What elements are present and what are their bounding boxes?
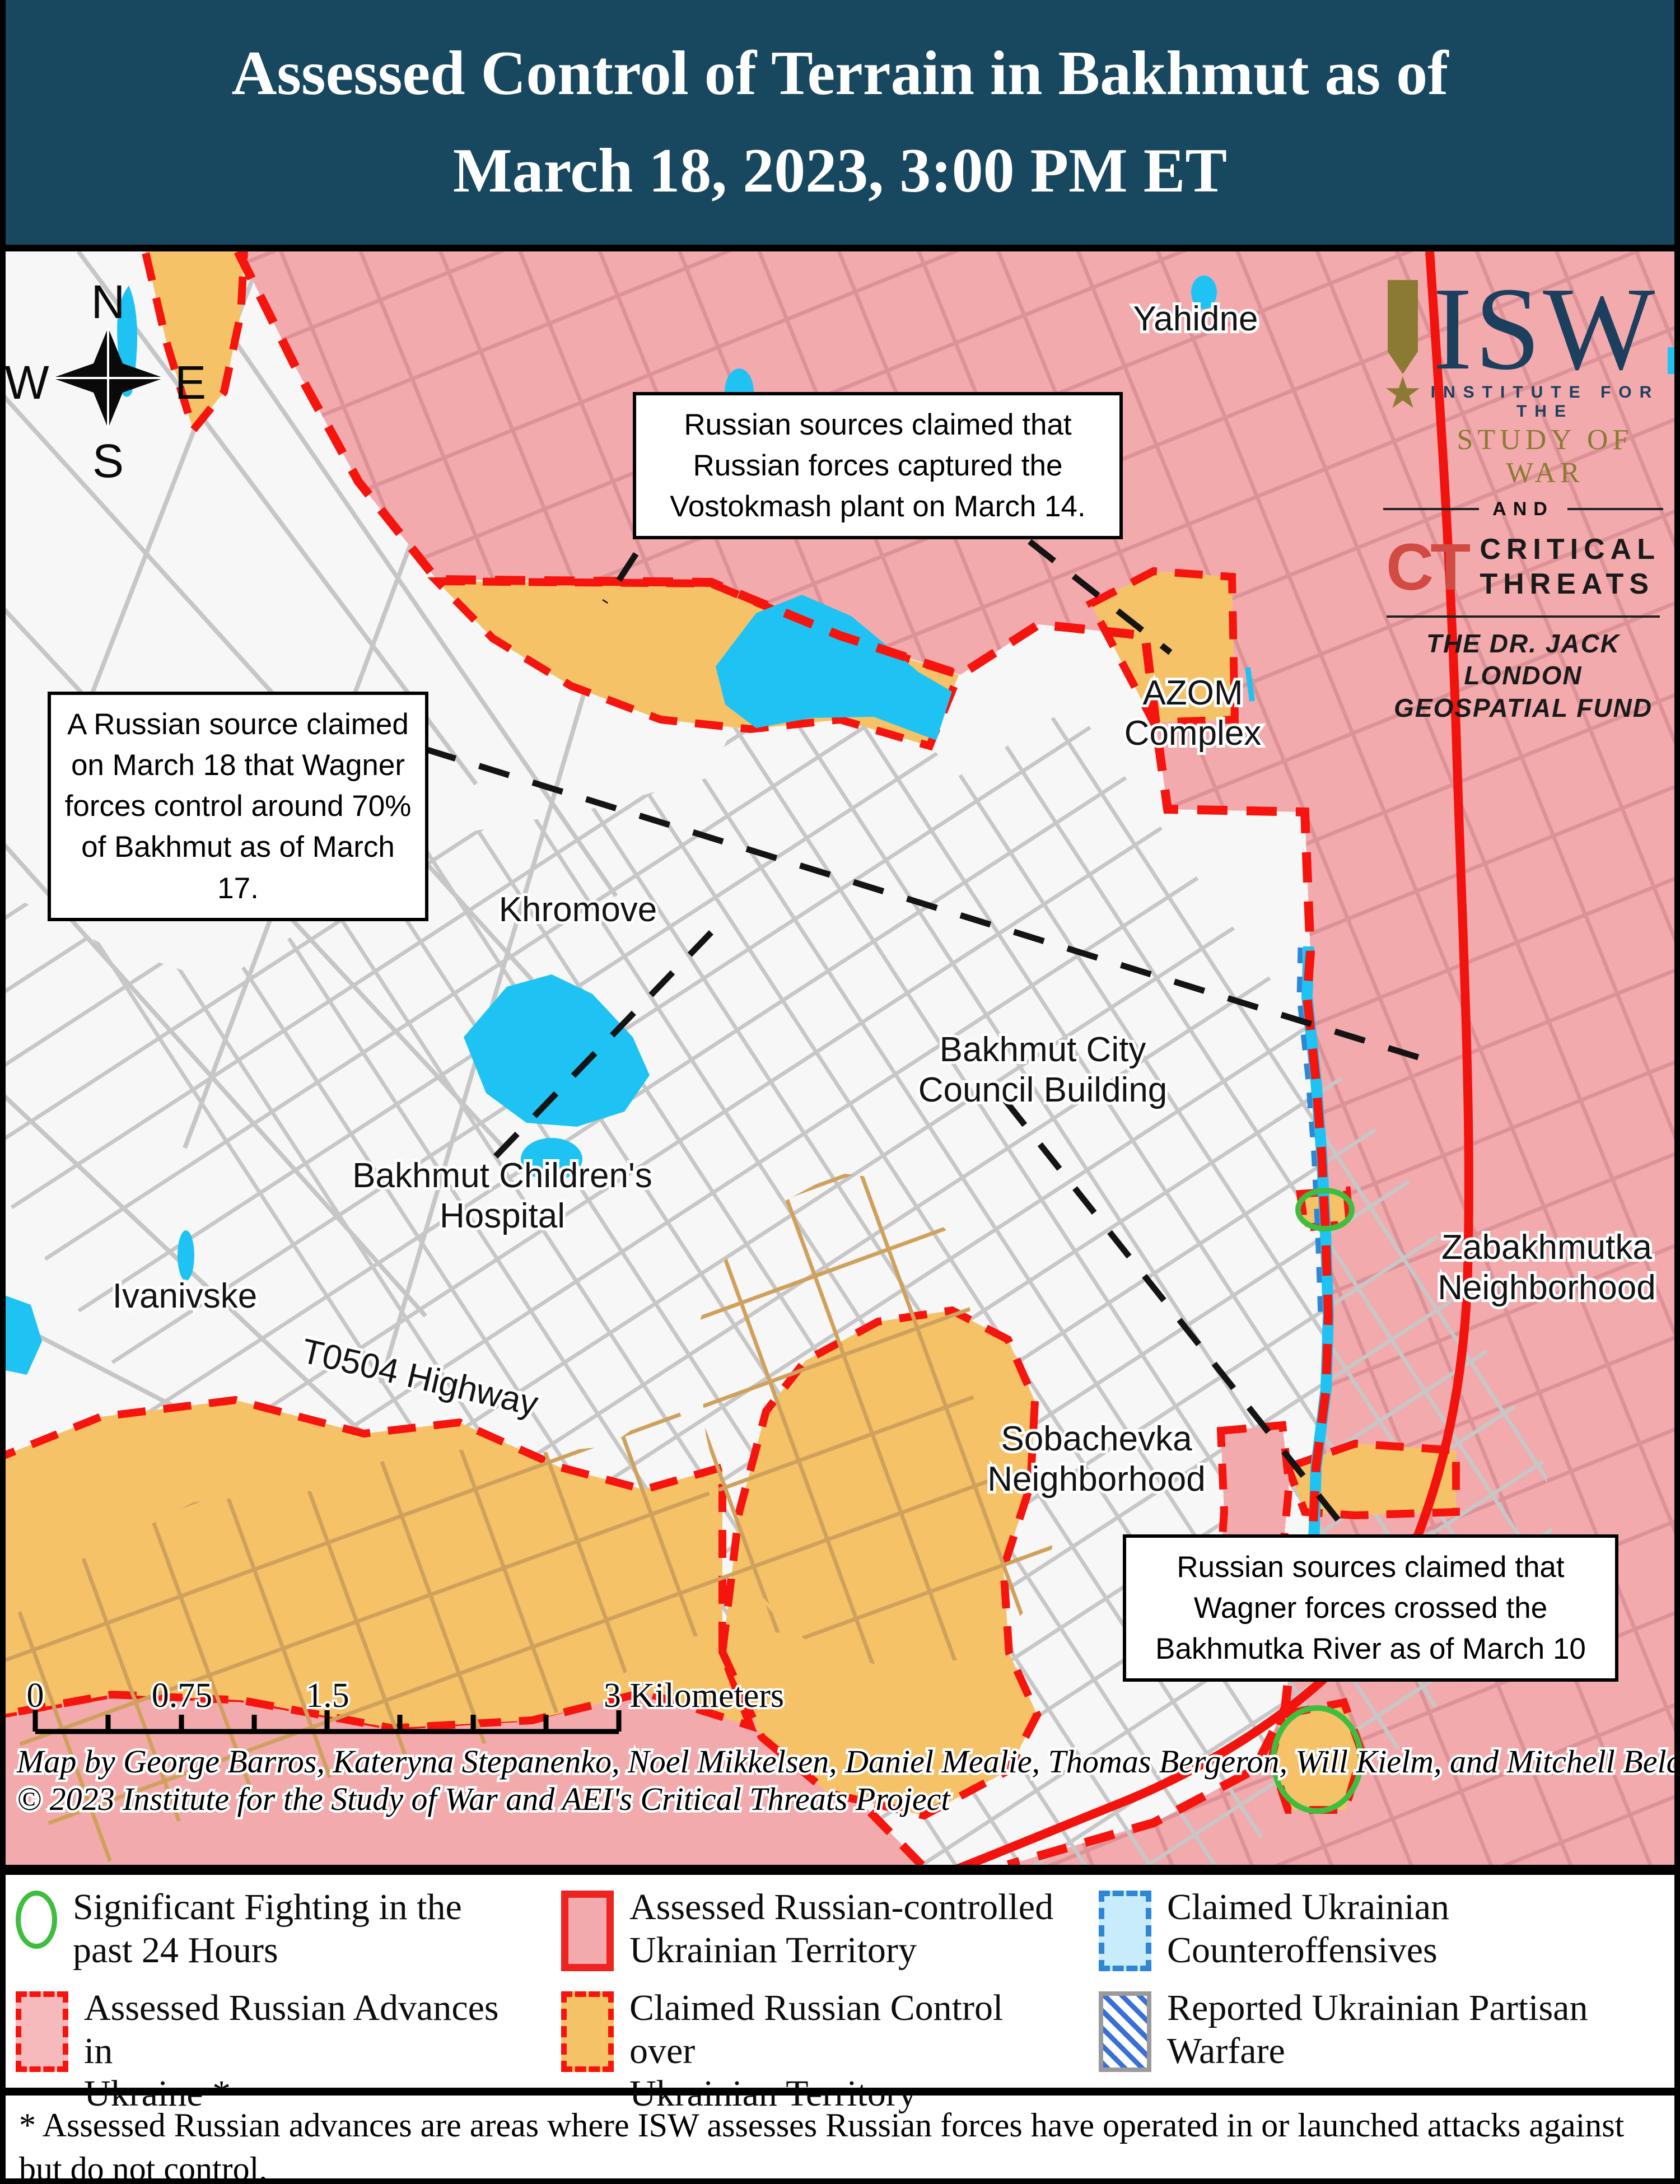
label-sobachevka-2: Neighborhood [987,1460,1206,1499]
svg-text:E: E [175,356,206,409]
svg-text:3 Kilometers: 3 Kilometers [604,1677,784,1715]
legend-item-claimed-control: Claimed Russian Control overUkrainian Te… [561,1987,1065,2116]
russian-advances-swatch [16,1991,68,2072]
label-zabakhmutka-2: Neighborhood [1438,1268,1656,1307]
label-sobachevka-1: Sobachevka [1001,1420,1192,1458]
title-separator [0,245,1680,251]
partisan-warfare-swatch [1099,1991,1151,2072]
label-ivanivske: Ivanivske [113,1277,257,1315]
callout-wagner-text: A Russian source claimed on March 18 tha… [59,704,417,909]
isw-institute-text: INSTITUTE FOR THE [1427,383,1663,421]
logo-and-divider: AND [1383,498,1663,520]
callout-vostokmash: Russian sources claimed that Russian for… [633,392,1123,539]
logo-rule [1387,615,1660,618]
title-bar: Assessed Control of Terrain in Bakhmut a… [0,0,1680,245]
page-title-line2: March 18, 2023, 3:00 PM ET [453,123,1227,220]
legend-item-partisan-warfare: Reported Ukrainian PartisanWarfare [1099,1987,1659,2073]
svg-text:0: 0 [27,1677,44,1715]
page-border-left [0,0,6,2184]
isw-gold-banner-icon: ★ [1383,280,1422,414]
callout-bakhmutka-text: Russian sources claimed that Wagner forc… [1134,1547,1607,1669]
page-border-right [1674,0,1680,2184]
geospatial-fund-line1: THE DR. JACK LONDON [1383,628,1663,692]
label-yahidne: Yahidne [1133,300,1258,338]
russian-controlled-swatch [561,1891,614,1971]
svg-text:N: N [91,276,125,328]
label-azom-2: Complex [1124,714,1262,753]
isw-star-icon: ★ [1383,371,1422,414]
isw-study-of-war-text: STUDY OF WAR [1427,423,1663,489]
label-khromove: Khromove [499,890,657,929]
label-hospital-1: Bakhmut Children's [352,1156,652,1195]
fighting-circle-swatch [16,1891,57,1949]
isw-wordmark: ISW [1427,280,1663,377]
legend-item-fighting: Significant Fighting in thepast 24 Hours [16,1886,520,1972]
svg-text:1.5: 1.5 [306,1677,349,1715]
counteroffensive-swatch [1099,1891,1151,1971]
label-azom-1: AZOM [1142,674,1243,712]
label-hospital-2: Hospital [440,1197,565,1235]
callout-wagner-control: A Russian source claimed on March 18 tha… [48,692,428,921]
legend-item-russian-controlled: Assessed Russian-controlledUkrainian Ter… [561,1886,1065,1972]
legend-item-counteroffensives: Claimed UkrainianCounteroffensives [1099,1886,1659,1972]
page-title-line1: Assessed Control of Terrain in Bakhmut a… [232,25,1449,123]
svg-text:0.75: 0.75 [152,1677,213,1715]
callout-vostokmash-text: Russian sources claimed that Russian for… [644,404,1112,527]
label-council-1: Bakhmut City [940,1030,1146,1069]
label-council-2: Council Building [918,1071,1168,1109]
svg-text:S: S [92,435,124,487]
isw-bakhmut-map-page: Assessed Control of Terrain in Bakhmut a… [0,0,1680,2184]
credits-line2: © 2023 Institute for the Study of War an… [17,1781,951,1817]
legend-separator [0,1865,1680,1875]
page-border-bottom [0,2178,1680,2184]
geospatial-fund-line2: GEOSPATIAL FUND [1383,692,1663,725]
claimed-control-swatch [561,1991,614,2072]
isw-ct-logo: ★ ISW INSTITUTE FOR THE STUDY OF WAR AND… [1383,280,1663,724]
critical-threats-wordmark: CRITICAL THREATS [1480,533,1660,601]
footnote-text: * Assessed Russian advances are areas wh… [19,2103,1654,2184]
label-zabakhmutka-1: Zabakhmutka [1441,1228,1652,1267]
credits-line1: Map by George Barros, Kateryna Stepanenk… [16,1743,1680,1780]
callout-bakhmutka-river: Russian sources claimed that Wagner forc… [1123,1534,1618,1682]
legend-item-russian-advances: Assessed Russian Advances inUkraine * [16,1987,520,2116]
footnote-separator [0,2088,1680,2096]
map-canvas: N W E S Yahidne AZOM Complex Khromove Ba… [0,251,1680,1865]
critical-threats-ct-icon: CT [1386,529,1467,605]
svg-text:W: W [4,356,49,409]
